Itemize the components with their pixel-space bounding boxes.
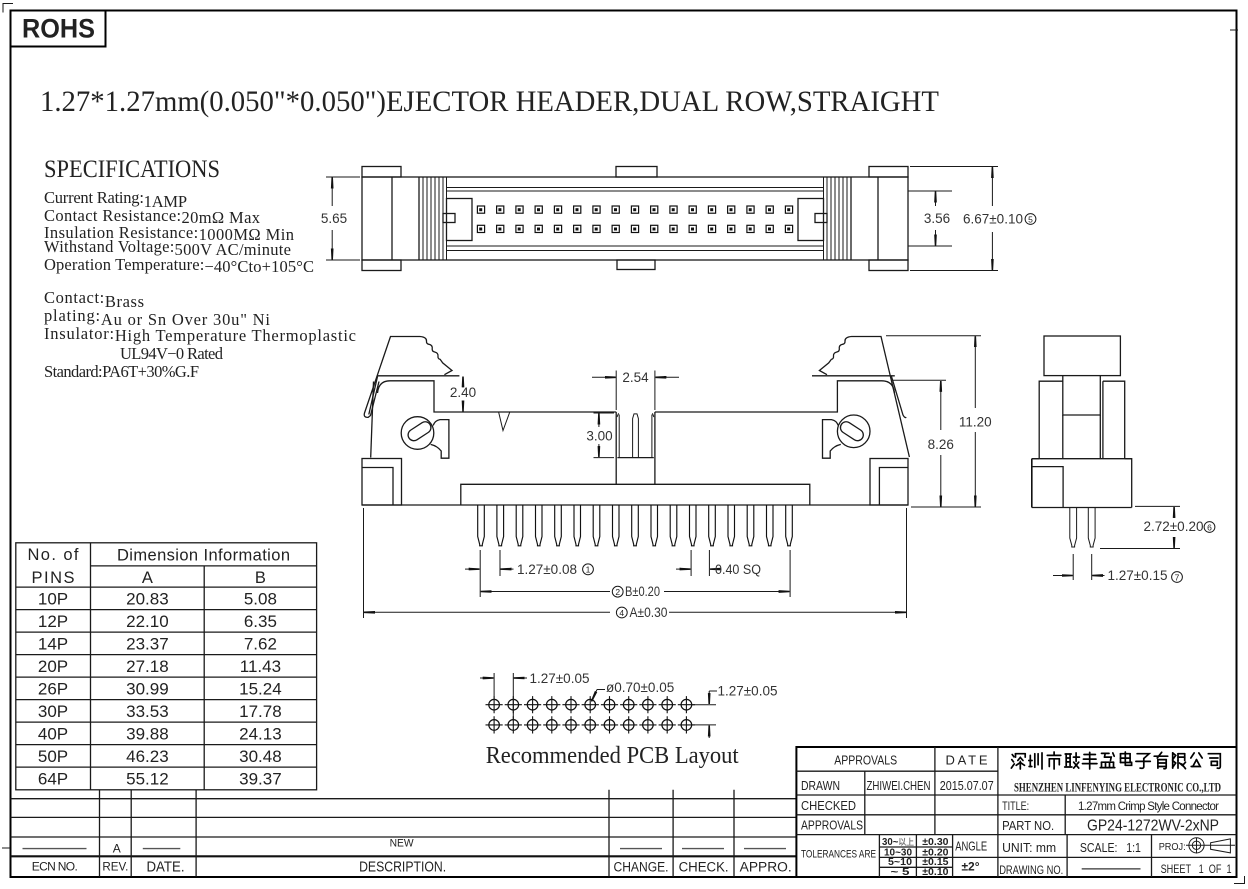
svg-text:SHEET 1 OF 1: SHEET 1 OF 1 bbox=[1161, 862, 1232, 876]
svg-text:~ 5: ~ 5 bbox=[891, 866, 910, 878]
svg-text:ø0.70±0.05: ø0.70±0.05 bbox=[606, 680, 674, 695]
svg-text:SPECIFICATIONS: SPECIFICATIONS bbox=[44, 156, 220, 183]
svg-text:22.10: 22.10 bbox=[126, 612, 169, 631]
svg-text:CHECK.: CHECK. bbox=[679, 860, 729, 875]
svg-text:GP24-1272WV-2xNP: GP24-1272WV-2xNP bbox=[1087, 818, 1219, 835]
svg-text:39.88: 39.88 bbox=[126, 725, 169, 744]
svg-text:7: 7 bbox=[1175, 572, 1180, 582]
svg-text:30.48: 30.48 bbox=[239, 747, 282, 766]
svg-text:6: 6 bbox=[1207, 522, 1212, 532]
svg-text:7.62: 7.62 bbox=[244, 635, 277, 654]
svg-text:PROJ:: PROJ: bbox=[1159, 841, 1186, 853]
svg-text:10P: 10P bbox=[38, 590, 68, 609]
svg-text:±0.10: ±0.10 bbox=[922, 866, 948, 878]
svg-text:APPROVALS: APPROVALS bbox=[801, 818, 863, 833]
svg-text:No. of: No. of bbox=[28, 546, 79, 564]
svg-text:2.54: 2.54 bbox=[622, 370, 649, 385]
svg-text:6.35: 6.35 bbox=[244, 612, 277, 631]
svg-text:Insulator:High Temperature The: Insulator:High Temperature Thermoplastic bbox=[44, 324, 356, 345]
svg-text:SHENZHEN LINFENYING ELECTRONIC: SHENZHEN LINFENYING ELECTRONIC CO.,LTD bbox=[1014, 780, 1221, 795]
svg-text:ECN NO.: ECN NO. bbox=[32, 860, 78, 874]
svg-text:3.00: 3.00 bbox=[586, 429, 612, 444]
svg-text:12P: 12P bbox=[38, 612, 68, 631]
svg-text:NEW: NEW bbox=[390, 838, 415, 850]
svg-text:1: 1 bbox=[586, 565, 591, 575]
svg-text:DRAWING NO.: DRAWING NO. bbox=[999, 865, 1063, 877]
svg-text:TITLE:: TITLE: bbox=[1002, 799, 1029, 813]
svg-text:Standard:PA6T+30%G.F: Standard:PA6T+30%G.F bbox=[44, 362, 199, 381]
svg-text:A: A bbox=[113, 842, 121, 856]
svg-text:14P: 14P bbox=[38, 635, 68, 654]
svg-text:CHANGE.: CHANGE. bbox=[614, 860, 669, 875]
svg-text:Dimension Information: Dimension Information bbox=[117, 547, 290, 565]
svg-text:27.18: 27.18 bbox=[126, 657, 169, 676]
svg-text:30.99: 30.99 bbox=[126, 680, 169, 699]
svg-text:8.26: 8.26 bbox=[928, 437, 954, 452]
svg-text:24.13: 24.13 bbox=[239, 725, 282, 744]
svg-text:5.08: 5.08 bbox=[244, 590, 277, 609]
svg-text:ZHIWEI.CHEN: ZHIWEI.CHEN bbox=[867, 779, 931, 793]
svg-text:15.24: 15.24 bbox=[239, 680, 282, 699]
svg-text:DATE.: DATE. bbox=[147, 859, 185, 876]
svg-text:DESCRIPTION.: DESCRIPTION. bbox=[359, 860, 446, 876]
svg-text:0.40 SQ: 0.40 SQ bbox=[715, 562, 761, 577]
svg-text:PART NO.: PART NO. bbox=[1002, 819, 1054, 833]
svg-text:APPRO.: APPRO. bbox=[740, 860, 792, 875]
svg-text:26P: 26P bbox=[38, 680, 68, 699]
svg-text:1.27±0.15: 1.27±0.15 bbox=[1108, 568, 1168, 583]
svg-text:SCALE: 1:1: SCALE: 1:1 bbox=[1080, 841, 1141, 855]
svg-text:6.67±0.10: 6.67±0.10 bbox=[963, 212, 1023, 227]
svg-text:55.12: 55.12 bbox=[126, 770, 169, 789]
svg-text:39.37: 39.37 bbox=[239, 770, 282, 789]
svg-text:REV.: REV. bbox=[102, 860, 128, 874]
svg-text:ROHS: ROHS bbox=[22, 14, 95, 44]
svg-text:11.43: 11.43 bbox=[240, 657, 281, 676]
svg-text:1.27*1.27mm(0.050"*0.050")EJEC: 1.27*1.27mm(0.050"*0.050")EJECTOR HEADER… bbox=[40, 85, 939, 118]
svg-text:B: B bbox=[255, 569, 266, 587]
svg-text:64P: 64P bbox=[38, 770, 68, 789]
svg-text:2015.07.07: 2015.07.07 bbox=[940, 779, 994, 793]
svg-text:1.27±0.05: 1.27±0.05 bbox=[718, 684, 778, 699]
svg-text:20P: 20P bbox=[38, 657, 68, 676]
svg-text:TOLERANCES ARE: TOLERANCES ARE bbox=[801, 849, 876, 861]
svg-text:A: A bbox=[142, 569, 153, 587]
svg-text:2: 2 bbox=[615, 587, 620, 597]
svg-text:30P: 30P bbox=[38, 702, 68, 721]
svg-text:Recommended PCB Layout: Recommended PCB Layout bbox=[486, 743, 739, 769]
svg-text:APPROVALS: APPROVALS bbox=[834, 753, 897, 768]
svg-text:17.78: 17.78 bbox=[239, 702, 282, 721]
svg-text:DRAWN: DRAWN bbox=[801, 778, 840, 793]
svg-text:±2°: ±2° bbox=[961, 860, 979, 874]
svg-text:UNIT: mm: UNIT: mm bbox=[1002, 841, 1056, 855]
svg-text:5: 5 bbox=[1028, 214, 1033, 224]
svg-text:B±0.20: B±0.20 bbox=[625, 584, 660, 599]
svg-text:23.37: 23.37 bbox=[126, 635, 169, 654]
svg-text:2.40: 2.40 bbox=[450, 385, 476, 400]
svg-text:1.27mm Crimp Style Connector: 1.27mm Crimp Style Connector bbox=[1078, 801, 1219, 813]
svg-text:2.72±0.20: 2.72±0.20 bbox=[1144, 519, 1204, 534]
svg-text:5.65: 5.65 bbox=[321, 211, 347, 226]
svg-text:A±0.30: A±0.30 bbox=[630, 605, 668, 620]
svg-text:1.27±0.05: 1.27±0.05 bbox=[530, 671, 590, 686]
svg-text:Operation Temperature:−40°Cto+: Operation Temperature:−40°Cto+105°C bbox=[44, 255, 314, 276]
svg-text:1.27±0.08: 1.27±0.08 bbox=[517, 562, 577, 577]
svg-text:33.53: 33.53 bbox=[126, 702, 169, 721]
svg-text:CHECKED: CHECKED bbox=[801, 798, 856, 813]
svg-text:46.23: 46.23 bbox=[126, 747, 169, 766]
svg-text:ANGLE: ANGLE bbox=[955, 840, 987, 854]
svg-text:3.56: 3.56 bbox=[924, 211, 950, 226]
svg-text:20.83: 20.83 bbox=[126, 590, 169, 609]
svg-text:50P: 50P bbox=[38, 747, 68, 766]
svg-text:11.20: 11.20 bbox=[959, 415, 992, 430]
svg-text:4: 4 bbox=[619, 608, 624, 618]
svg-text:40P: 40P bbox=[38, 725, 68, 744]
svg-text:PINS: PINS bbox=[32, 569, 75, 587]
svg-text:UL94V−0 Rated: UL94V−0 Rated bbox=[120, 344, 224, 363]
